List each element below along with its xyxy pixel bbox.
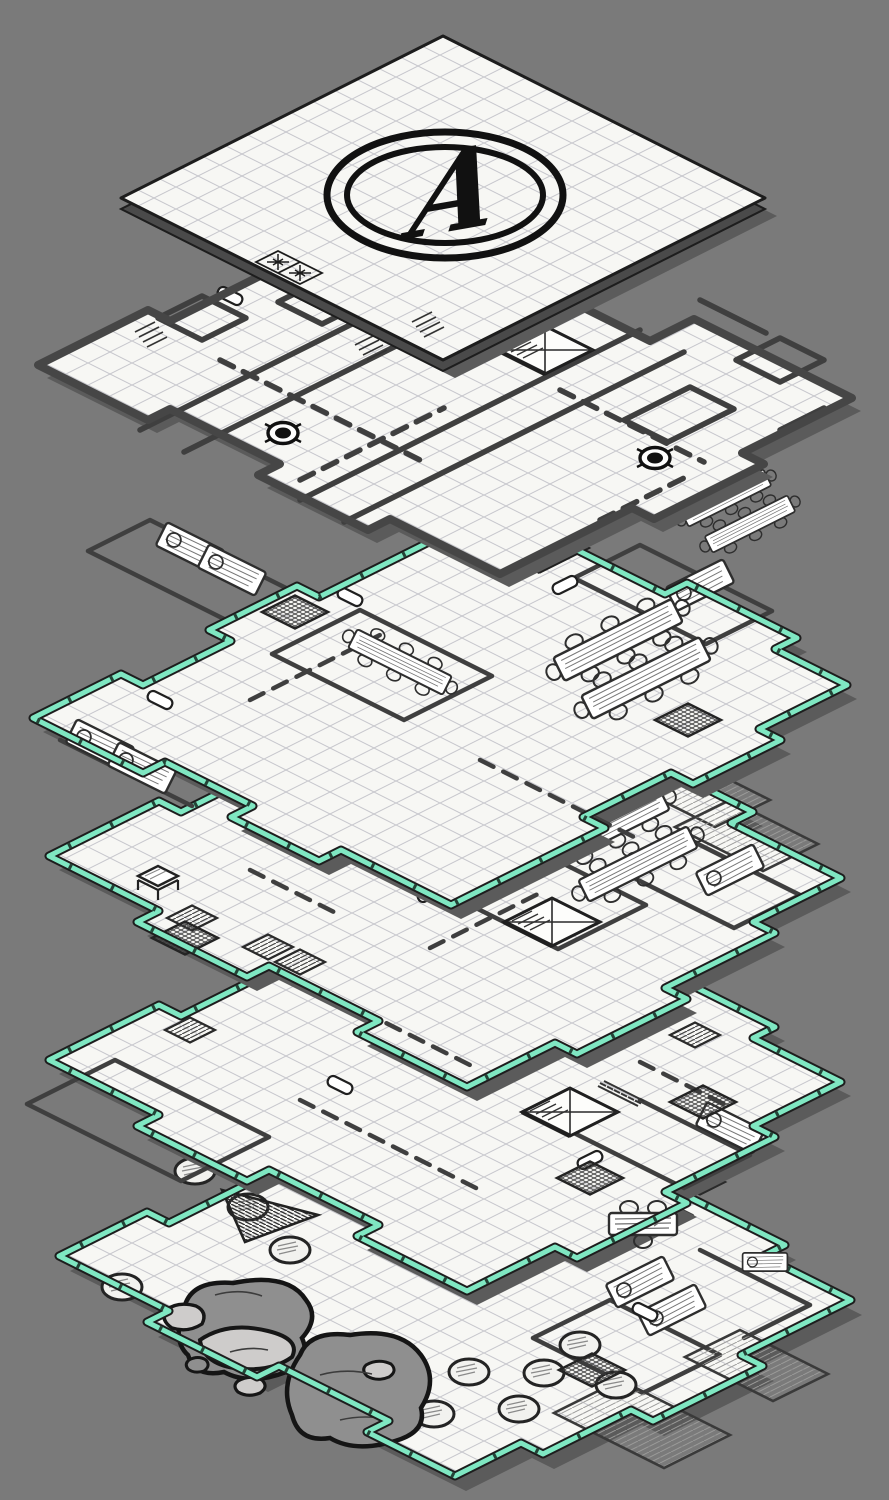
pillar-icon bbox=[270, 1237, 310, 1263]
pillar-icon bbox=[449, 1359, 489, 1385]
pillar-icon bbox=[499, 1396, 539, 1422]
well-icon bbox=[637, 448, 673, 469]
pillar-icon bbox=[524, 1360, 564, 1386]
dungeon-map-stage: A bbox=[0, 0, 889, 1500]
page: { "map": { "title": "Isometric multi-lev… bbox=[0, 0, 889, 1500]
boulder-icon bbox=[287, 1333, 430, 1446]
boulder-icon bbox=[186, 1358, 208, 1373]
dungeon-map-svg: A bbox=[0, 0, 889, 1500]
bunk-icon bbox=[198, 544, 267, 596]
boulder-icon bbox=[364, 1361, 394, 1379]
desk-icon bbox=[743, 1253, 788, 1271]
well-icon bbox=[265, 423, 301, 444]
